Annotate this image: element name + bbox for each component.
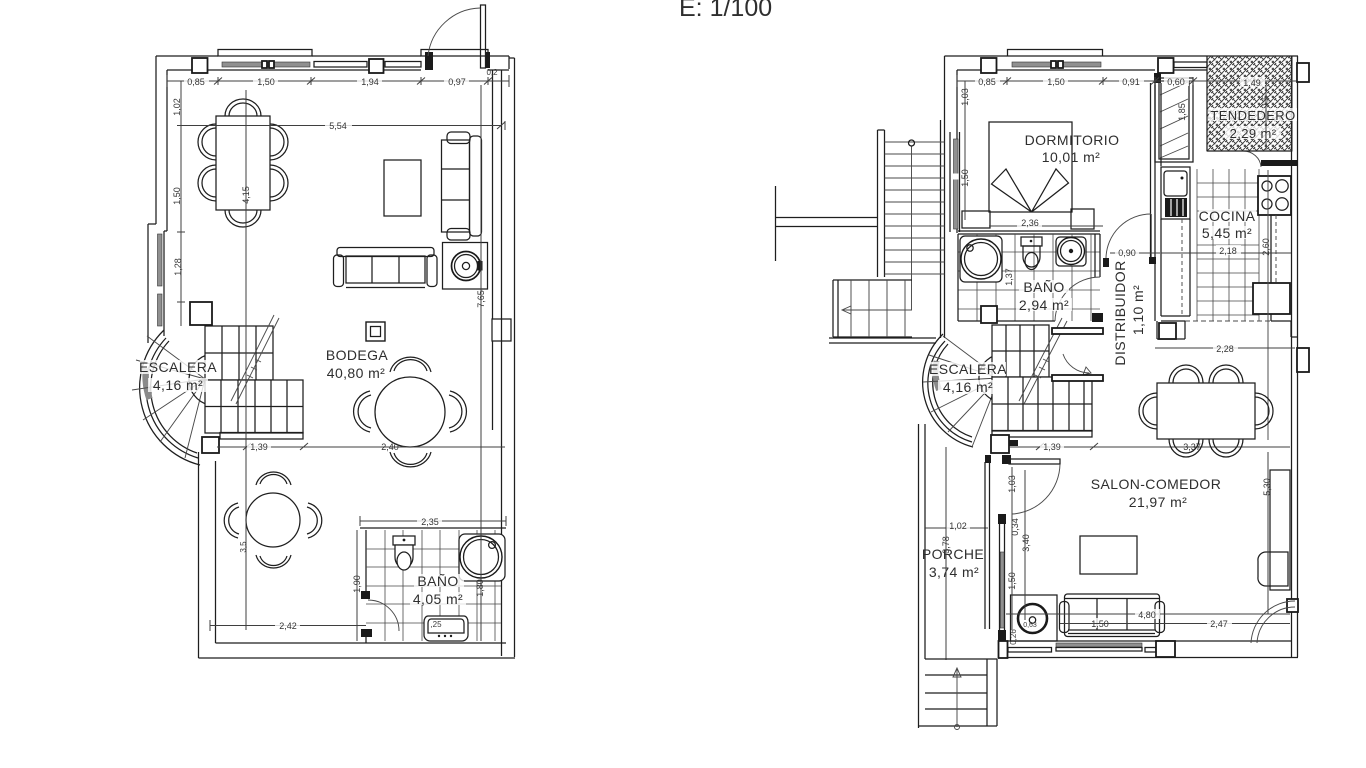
svg-text:DISTRIBUIDOR: DISTRIBUIDOR bbox=[1112, 260, 1128, 365]
svg-text:3,40: 3,40 bbox=[1021, 534, 1031, 552]
svg-text:3,5: 3,5 bbox=[239, 541, 248, 553]
svg-text:5,30: 5,30 bbox=[1262, 478, 1272, 496]
svg-text:40,80 m²: 40,80 m² bbox=[327, 365, 385, 381]
svg-text:0,26: 0,26 bbox=[1009, 629, 1018, 645]
svg-text:5,45 m²: 5,45 m² bbox=[1202, 225, 1252, 241]
svg-text:BAÑO: BAÑO bbox=[417, 573, 458, 589]
svg-text:2,60: 2,60 bbox=[1261, 238, 1271, 256]
svg-text:SALON-COMEDOR: SALON-COMEDOR bbox=[1091, 476, 1221, 492]
svg-text:1,49: 1,49 bbox=[1243, 78, 1261, 88]
svg-text:1,39: 1,39 bbox=[1043, 442, 1061, 452]
svg-text:2,36: 2,36 bbox=[1021, 218, 1039, 228]
svg-text:1,10 m²: 1,10 m² bbox=[1130, 285, 1146, 335]
svg-text:0,63: 0,63 bbox=[1023, 622, 1037, 629]
svg-text:1,37: 1,37 bbox=[1004, 268, 1014, 286]
svg-text:1,50: 1,50 bbox=[257, 77, 275, 87]
svg-text:1,50: 1,50 bbox=[1047, 77, 1065, 87]
svg-text:,25: ,25 bbox=[430, 620, 442, 629]
svg-text:TENDEDERO: TENDEDERO bbox=[1210, 108, 1295, 123]
svg-text:ESCALERA: ESCALERA bbox=[139, 359, 217, 375]
svg-text:3,74 m²: 3,74 m² bbox=[929, 564, 979, 580]
svg-text:2,94 m²: 2,94 m² bbox=[1019, 297, 1069, 313]
svg-text:2,40: 2,40 bbox=[381, 442, 399, 452]
svg-text:2,29 m²: 2,29 m² bbox=[1230, 126, 1277, 141]
svg-text:BODEGA: BODEGA bbox=[326, 347, 389, 363]
svg-text:DORMITORIO: DORMITORIO bbox=[1025, 132, 1120, 148]
svg-text:0,60: 0,60 bbox=[1167, 77, 1185, 87]
svg-text:4,16 m²: 4,16 m² bbox=[943, 379, 993, 395]
svg-text:0,2: 0,2 bbox=[486, 68, 498, 77]
svg-text:BAÑO: BAÑO bbox=[1023, 279, 1064, 295]
svg-text:0,97: 0,97 bbox=[448, 77, 466, 87]
svg-text:E: 1/100: E: 1/100 bbox=[679, 0, 772, 22]
svg-text:7,65: 7,65 bbox=[476, 290, 486, 308]
svg-text:2,47: 2,47 bbox=[1210, 619, 1228, 629]
svg-text:1,80: 1,80 bbox=[475, 579, 485, 597]
svg-text:2,35: 2,35 bbox=[421, 517, 439, 527]
svg-text:2,18: 2,18 bbox=[1219, 246, 1237, 256]
svg-text:4,80: 4,80 bbox=[1138, 610, 1156, 620]
svg-text:ESCALERA: ESCALERA bbox=[929, 361, 1007, 377]
svg-text:0,85: 0,85 bbox=[187, 77, 205, 87]
svg-text:0,90: 0,90 bbox=[1118, 248, 1136, 258]
svg-text:0,85: 0,85 bbox=[978, 77, 996, 87]
svg-text:1,03: 1,03 bbox=[960, 88, 970, 106]
svg-text:1,50: 1,50 bbox=[960, 169, 970, 187]
svg-text:COCINA: COCINA bbox=[1199, 208, 1256, 224]
svg-text:1,85: 1,85 bbox=[1177, 103, 1187, 121]
svg-text:10,01 m²: 10,01 m² bbox=[1042, 149, 1100, 165]
svg-text:21,97 m²: 21,97 m² bbox=[1129, 494, 1187, 510]
svg-text:4,05 m²: 4,05 m² bbox=[413, 591, 463, 607]
svg-text:1,02: 1,02 bbox=[949, 521, 967, 531]
svg-text:PORCHE: PORCHE bbox=[922, 546, 984, 562]
svg-text:4,16 m²: 4,16 m² bbox=[153, 377, 203, 393]
svg-text:0,91: 0,91 bbox=[1122, 77, 1140, 87]
svg-text:2,42: 2,42 bbox=[279, 621, 297, 631]
svg-text:1,02: 1,02 bbox=[172, 98, 182, 116]
svg-text:2,28: 2,28 bbox=[1216, 344, 1234, 354]
svg-text:5,54: 5,54 bbox=[329, 121, 347, 131]
svg-text:1,28: 1,28 bbox=[173, 258, 183, 276]
svg-text:1,50: 1,50 bbox=[172, 187, 182, 205]
svg-text:1,39: 1,39 bbox=[250, 442, 268, 452]
svg-text:1,90: 1,90 bbox=[352, 575, 362, 593]
svg-text:1,94: 1,94 bbox=[361, 77, 379, 87]
svg-text:4,15: 4,15 bbox=[241, 186, 251, 204]
